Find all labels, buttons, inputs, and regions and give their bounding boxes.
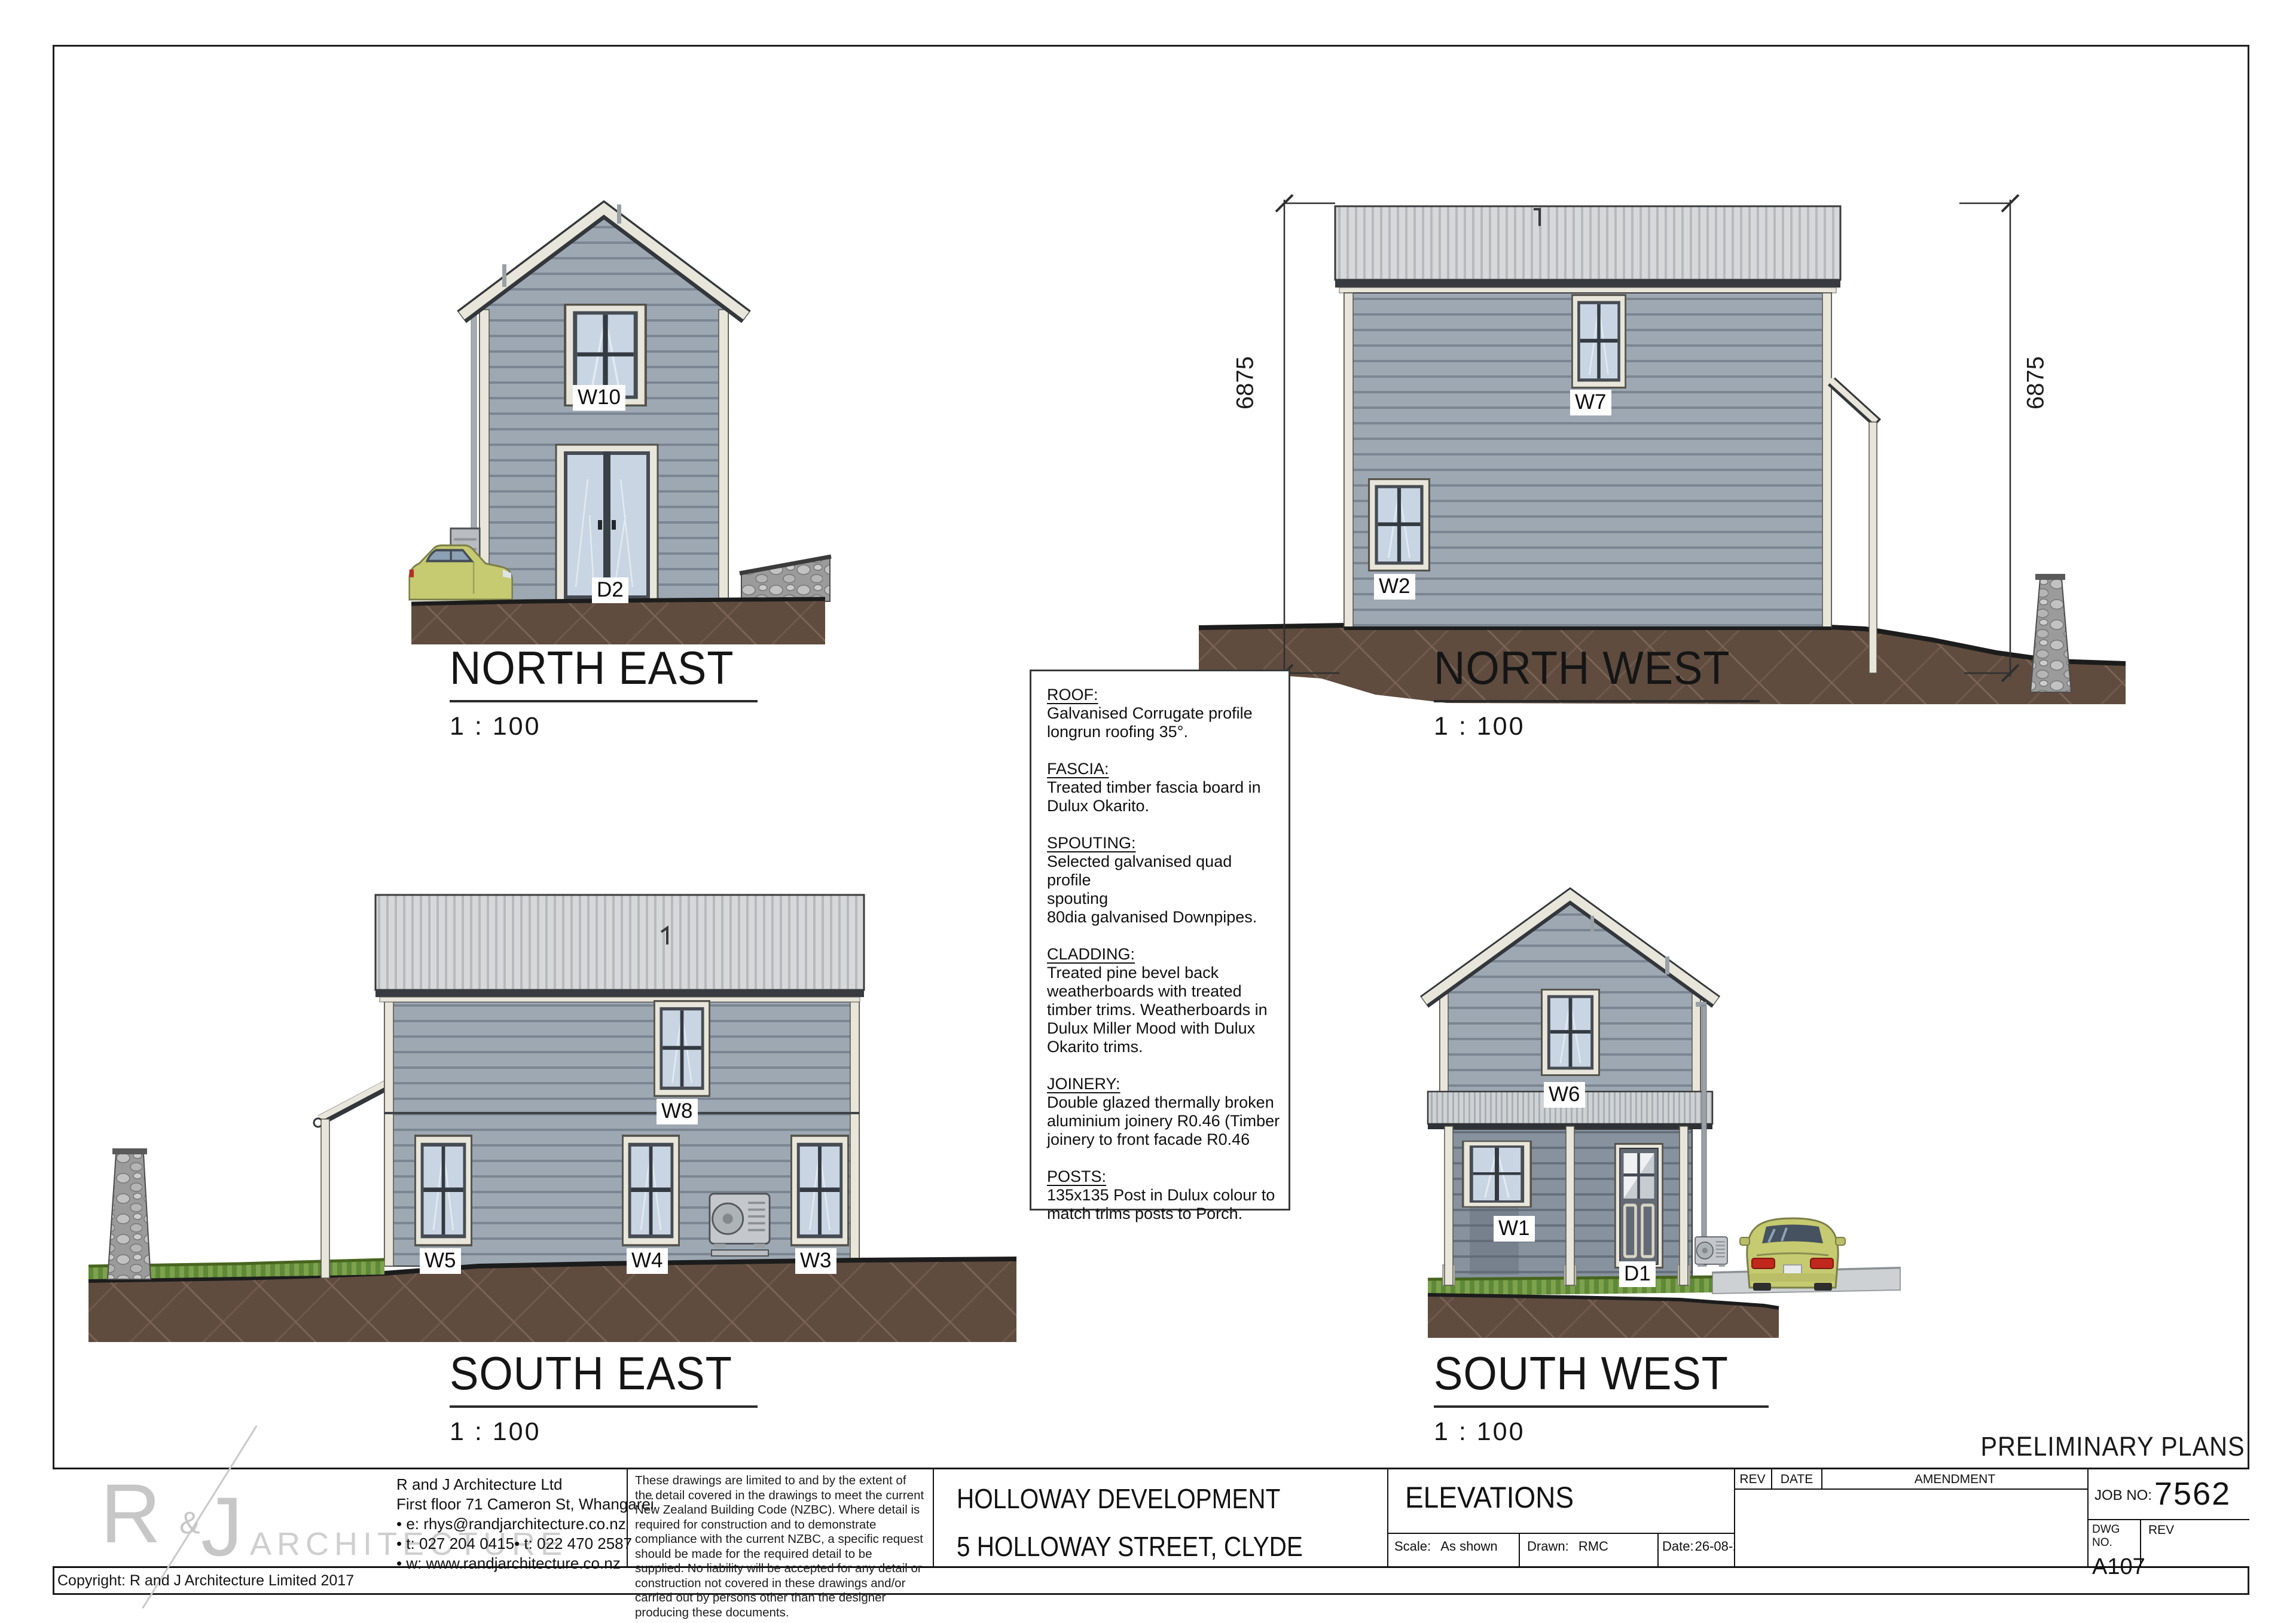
spec-posts-heading: POSTS: [1047, 1167, 1280, 1186]
ne-title-underline [450, 700, 758, 702]
preliminary-plans-stamp: PRELIMINARY PLANS [1981, 1431, 2245, 1462]
dwg-rev-label: REV [2141, 1520, 2174, 1567]
disclaimer-text: These drawings are limited to and by the… [635, 1474, 924, 1620]
nw-title-block: NORTH WEST 1 : 100 [1434, 641, 1760, 741]
spec-joinery-body: Double glazed thermally broken aluminium… [1047, 1093, 1280, 1149]
tag-w4: W4 [627, 1248, 668, 1274]
ne-stone-wall [740, 556, 831, 601]
copyright-notice: Copyright: R and J Architecture Limited … [57, 1572, 354, 1590]
tag-w7: W7 [1570, 390, 1611, 415]
se-scale: 1 : 100 [450, 1417, 758, 1447]
se-porch-post [321, 1119, 329, 1278]
drawn-label: Drawn: [1527, 1539, 1569, 1554]
se-stone-pillar [108, 1148, 151, 1279]
nw-porch-post [1869, 422, 1877, 673]
se-gutter [375, 990, 864, 997]
tag-d2: D2 [592, 577, 628, 603]
scale-row: Scale: As shown Drawn: RMC Date:26-08-25 [1387, 1533, 1734, 1566]
spec-spouting: SPOUTING: Selected galvanised quad profi… [1047, 834, 1280, 927]
sw-ground [1428, 1295, 1779, 1338]
nw-gutter [1335, 280, 1840, 288]
spec-cladding-heading: CLADDING: [1047, 945, 1280, 964]
drawing-sheet: W10 D2 W7 W2 W8 W5 W4 W3 W6 W1 D1 6875 6… [0, 0, 2296, 1623]
company-website: • w: www.randjarchitecture.co.nz [396, 1554, 654, 1573]
ne-title: NORTH EAST [450, 641, 736, 695]
project-name: HOLLOWAY DEVELOPMENT [957, 1483, 1280, 1515]
se-window-w3 [791, 1136, 848, 1245]
company-email: • e: rhys@randjarchitecture.co.nz [396, 1514, 654, 1534]
revision-table-header: REV DATE AMENDMENT [1734, 1469, 2087, 1490]
company-phone: • t: 027 204 0415• t: 022 470 2587 [396, 1534, 654, 1554]
nw-window-w7 [1572, 295, 1625, 388]
company-address: First floor 71 Cameron St, Whangarei [396, 1494, 654, 1514]
tb-divider-2 [933, 1469, 934, 1566]
nw-dim-right-label: 6875 [2023, 344, 2050, 422]
nw-title: NORTH WEST [1434, 641, 1737, 695]
drawn-value: RMC [1578, 1539, 1608, 1554]
nw-dim-left [1276, 195, 1339, 681]
tag-w1: W1 [1494, 1216, 1535, 1242]
nw-stone-pillar [2031, 574, 2071, 692]
nw-scale: 1 : 100 [1434, 712, 1760, 741]
logo-ampersand: & [179, 1508, 200, 1539]
sw-scale: 1 : 100 [1434, 1417, 1769, 1447]
se-heat-pump [712, 1250, 768, 1256]
rev-column-header: REV [1734, 1469, 1771, 1488]
tag-w10: W10 [573, 385, 625, 411]
nw-title-underline [1434, 700, 1760, 702]
nw-roof [1335, 206, 1840, 280]
sw-door-d1 [1615, 1144, 1662, 1268]
scale-value: As shown [1440, 1539, 1497, 1554]
spec-fascia-body: Treated timber fascia board in Dulux Oka… [1047, 778, 1280, 815]
spec-joinery: JOINERY: Double glazed thermally broken … [1047, 1075, 1280, 1149]
nw-window-w2 [1369, 479, 1430, 571]
tag-w2: W2 [1374, 574, 1415, 600]
amendment-column-header: AMENDMENT [1821, 1469, 2087, 1488]
sw-heat-pump [1695, 1237, 1727, 1267]
spec-cladding-body: Treated pine bevel back weatherboards wi… [1047, 964, 1280, 1056]
sw-window-w6 [1541, 989, 1599, 1075]
sw-title-block: SOUTH WEST 1 : 100 [1434, 1346, 1769, 1447]
se-window-w4 [622, 1136, 679, 1245]
drawn-cell: Drawn: RMC [1519, 1534, 1657, 1566]
ne-ground [411, 598, 825, 644]
se-heat-pump-unit [710, 1194, 770, 1248]
tag-w3: W3 [795, 1248, 836, 1274]
scale-label: Scale: [1394, 1539, 1431, 1554]
spec-cladding: CLADDING: Treated pine bevel back weathe… [1047, 945, 1280, 1056]
date-label: Date: [1662, 1539, 1694, 1554]
sw-window-w1 [1463, 1141, 1531, 1207]
south-east-elevation-drawing [60, 867, 1040, 1405]
specification-notes: ROOF: Galvanised Corrugate profile longr… [1030, 670, 1290, 1211]
job-number-label: JOB NO: [2095, 1487, 2152, 1504]
spec-joinery-heading: JOINERY: [1047, 1075, 1280, 1093]
drawing-number-cell: DWG NO. A107 REV [2087, 1520, 2249, 1567]
dwg-number-label: DWG NO. [2092, 1523, 2140, 1549]
se-title: SOUTH EAST [450, 1346, 736, 1401]
tag-w8: W8 [657, 1099, 698, 1124]
spec-spouting-heading: SPOUTING: [1047, 834, 1280, 852]
job-number-cell: JOB NO: 7562 [2087, 1469, 2249, 1520]
nw-dim-left-label: 6875 [1232, 344, 1259, 422]
company-name: R and J Architecture Ltd [396, 1475, 654, 1494]
date-value: 26-08-25 [1695, 1539, 1734, 1554]
dwg-number-value: A107 [2092, 1554, 2140, 1580]
spec-roof: ROOF: Galvanised Corrugate profile longr… [1047, 686, 1280, 741]
se-roof [375, 895, 864, 990]
date-cell: Date:26-08-25 [1657, 1534, 1734, 1566]
tag-w6: W6 [1544, 1082, 1585, 1108]
tag-w5: W5 [420, 1248, 461, 1274]
dwg-number-subcell: DWG NO. A107 [2087, 1520, 2141, 1567]
logo-letter-r: R [100, 1472, 161, 1555]
title-block: R & J ARCHITECTURE R and J Architecture … [53, 1468, 2249, 1568]
sw-car [1740, 1218, 1845, 1291]
drawing-title: ELEVATIONS [1405, 1480, 1574, 1515]
job-number-value: 7562 [2154, 1475, 2231, 1512]
spec-roof-body: Galvanised Corrugate profile longrun roo… [1047, 704, 1280, 741]
ne-scale: 1 : 100 [450, 712, 758, 741]
logo-letter-j: J [201, 1485, 243, 1569]
project-address: 5 HOLLOWAY STREET, CLYDE [957, 1530, 1303, 1563]
north-west-elevation-drawing [1196, 191, 2129, 717]
spec-roof-heading: ROOF: [1047, 686, 1280, 704]
date-column-header: DATE [1771, 1469, 1821, 1488]
spec-spouting-body: Selected galvanised quad profile spoutin… [1047, 852, 1280, 927]
spec-posts-body: 135x135 Post in Dulux colour to match tr… [1047, 1186, 1280, 1223]
spec-fascia: FASCIA: Treated timber fascia board in D… [1047, 760, 1280, 815]
sw-title: SOUTH WEST [1434, 1346, 1745, 1401]
se-window-w5 [415, 1136, 471, 1245]
se-title-block: SOUTH EAST 1 : 100 [450, 1346, 758, 1447]
scale-cell: Scale: As shown [1387, 1534, 1519, 1566]
se-window-w8 [654, 1001, 709, 1096]
spec-posts: POSTS: 135x135 Post in Dulux colour to m… [1047, 1167, 1280, 1223]
spec-fascia-heading: FASCIA: [1047, 760, 1280, 778]
ne-title-block: NORTH EAST 1 : 100 [450, 641, 758, 741]
sw-title-underline [1434, 1405, 1769, 1408]
tag-d1: D1 [1619, 1261, 1656, 1287]
se-title-underline [450, 1405, 758, 1408]
nw-dim-right [1959, 195, 2019, 681]
company-info: R and J Architecture Ltd First floor 71 … [396, 1475, 654, 1573]
